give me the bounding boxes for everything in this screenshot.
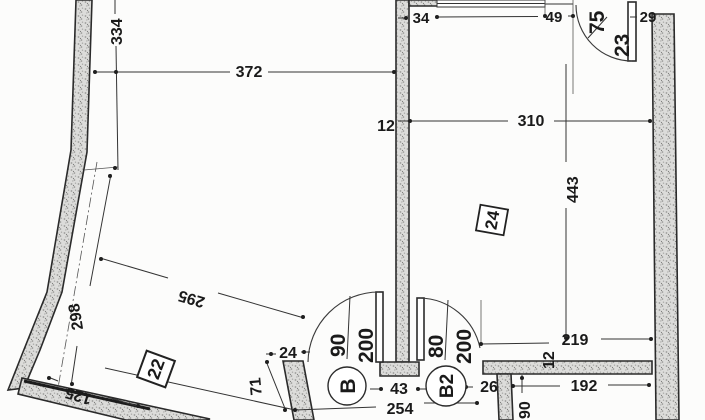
wall-middle-partition xyxy=(396,0,409,362)
wall-top-stub xyxy=(409,0,438,6)
dim-443-label: 443 xyxy=(565,176,582,203)
floor-plan-canvas: 372 334 310 12 443 34 49 29 295 298 125 … xyxy=(0,0,705,420)
dim-90-label: 90 xyxy=(517,401,534,419)
wall-bottom-right xyxy=(483,361,652,374)
door-b-height: 200 xyxy=(355,328,378,363)
dimension-lines xyxy=(47,0,653,412)
door-b2-height: 200 xyxy=(453,329,476,364)
dim-43-label: 43 xyxy=(390,381,408,398)
dim-dot xyxy=(113,166,117,170)
door-b2-leaf xyxy=(417,298,424,360)
dim-12-bottom-label: 12 xyxy=(541,351,558,369)
wall-right-exterior xyxy=(652,14,679,420)
room-24-number: 24 xyxy=(481,209,503,231)
door-b2-tag: B2 xyxy=(437,374,458,398)
dim-298-label: 298 xyxy=(66,302,87,331)
door-top-width: 75 xyxy=(586,10,609,34)
door-top-height: 23 xyxy=(611,34,634,57)
dim-192-label: 192 xyxy=(571,378,598,395)
door-b-tag: B xyxy=(337,378,360,393)
door-b2-size-label: 80 200 B2 xyxy=(425,300,476,406)
dim-26-label: 26 xyxy=(480,379,498,396)
dim-310-label: 310 xyxy=(518,113,545,130)
dim-334-label: 334 xyxy=(109,18,126,45)
dim-24-label: 24 xyxy=(279,345,297,362)
dim-295-label: 295 xyxy=(176,286,207,310)
door-b2-width: 80 xyxy=(425,335,448,358)
floor-plan-scan: 372 334 310 12 443 34 49 29 295 298 125 … xyxy=(0,0,705,420)
dim-71-label: 71 xyxy=(247,377,265,396)
tick-wall-bend xyxy=(84,167,118,170)
dim-254-label: 254 xyxy=(387,401,414,418)
wall-stub-left-of-door-b xyxy=(283,361,314,420)
dim-372-label: 372 xyxy=(236,64,263,81)
dim-49-label: 49 xyxy=(546,9,563,26)
door-top-size-label: 75 23 xyxy=(586,10,634,57)
dim-12-top-label: 12 xyxy=(377,118,395,135)
wall-left-exterior xyxy=(8,0,92,390)
window-top xyxy=(437,0,573,7)
door-b-width: 90 xyxy=(327,334,350,357)
room-24-box: 24 xyxy=(476,205,508,235)
dim-219-label: 219 xyxy=(562,332,589,349)
wall-lower-vertical xyxy=(497,374,513,420)
dim-29-label: 29 xyxy=(640,9,657,26)
wall-middle-foot xyxy=(380,362,419,376)
dim-34-label: 34 xyxy=(413,10,430,27)
